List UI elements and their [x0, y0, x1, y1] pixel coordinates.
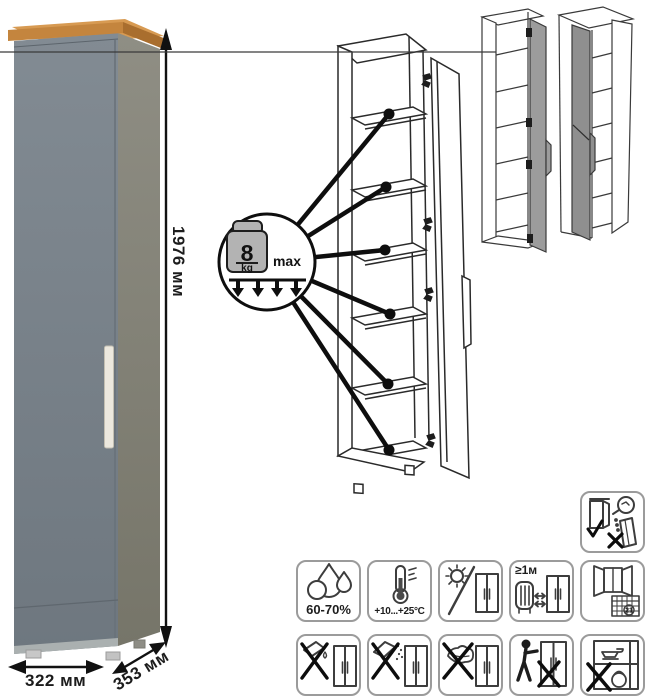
open-window-calendar-icon: 21 — [582, 562, 643, 620]
cabinet-foot — [106, 652, 120, 660]
no-heavy-objects-icon — [582, 636, 643, 694]
care-icon-no-liquids — [296, 634, 361, 696]
secure-to-wall-icon — [582, 493, 643, 551]
cabinet-front-door — [14, 33, 118, 654]
no-abrasive-powder-icon — [369, 636, 430, 694]
variant-b-handle — [590, 133, 595, 175]
calendar-glyph: 21 — [612, 596, 639, 616]
width-dimension-label: 322 мм — [25, 671, 86, 691]
cabinet-side-panel — [118, 33, 160, 646]
wardrobe-glyph — [476, 574, 498, 612]
hinge-icon — [422, 217, 433, 232]
wardrobe-glyph — [405, 646, 427, 686]
calendar-day-label: 21 — [625, 608, 633, 615]
variant-drawing-left-hinge — [559, 7, 633, 240]
cabinet-photo — [8, 19, 166, 660]
drawing-door-handle — [462, 276, 471, 348]
variant-a-door — [530, 19, 546, 252]
open-cabinet-drawing — [338, 34, 471, 493]
cabinet-foot — [26, 650, 41, 658]
no-liquids-icon — [298, 636, 359, 694]
no-dragging-icon — [511, 636, 572, 694]
care-icon-no-scrubbing — [438, 634, 503, 696]
anvil-glyph — [602, 649, 623, 659]
care-icon-no-sunlight — [438, 560, 503, 622]
hinge-icon — [423, 287, 434, 302]
keep-distance-from-heat-icon — [511, 562, 572, 620]
furniture-product-sheet: { "dimensions": { "height": "1976 мм", "… — [0, 0, 648, 700]
wardrobe-glyph — [476, 646, 498, 686]
care-icon-humidity: 60-70% — [296, 560, 361, 622]
wardrobe-glyph — [547, 576, 569, 612]
care-icon-no-dragging — [509, 634, 574, 696]
no-direct-sunlight-icon — [440, 562, 501, 620]
thermometer-icon — [369, 562, 430, 604]
max-load-qualifier: max — [273, 253, 301, 269]
care-icon-heat-distance: ≥1м — [509, 560, 574, 622]
variant-a-handle — [546, 140, 551, 176]
open-door — [431, 58, 471, 478]
wardrobe-glyph — [334, 646, 356, 686]
max-load-unit: kg — [241, 263, 253, 274]
care-icon-anti-tip — [580, 491, 645, 553]
no-scrubbing-icon — [440, 636, 501, 694]
hinge-icon — [425, 433, 436, 448]
cabinet-foot — [134, 640, 145, 648]
weight-8kg-max-icon: 8 kg — [227, 221, 267, 274]
kettlebell-glyph — [612, 672, 626, 688]
shelf-callout-dots — [380, 109, 396, 456]
water-drops-icon — [298, 562, 359, 602]
care-icon-temperature: +10...+25°C — [367, 560, 432, 622]
care-icon-ventilation: 21 — [580, 560, 645, 622]
max-load-callout: 8 kg max — [219, 214, 315, 310]
door-handle — [105, 346, 114, 448]
height-dimension-label: 1976 мм — [168, 226, 188, 297]
humidity-label: 60-70% — [298, 602, 359, 617]
care-icon-no-powder — [367, 634, 432, 696]
care-icon-no-overload — [580, 634, 645, 696]
temperature-label: +10...+25°C — [369, 606, 430, 617]
